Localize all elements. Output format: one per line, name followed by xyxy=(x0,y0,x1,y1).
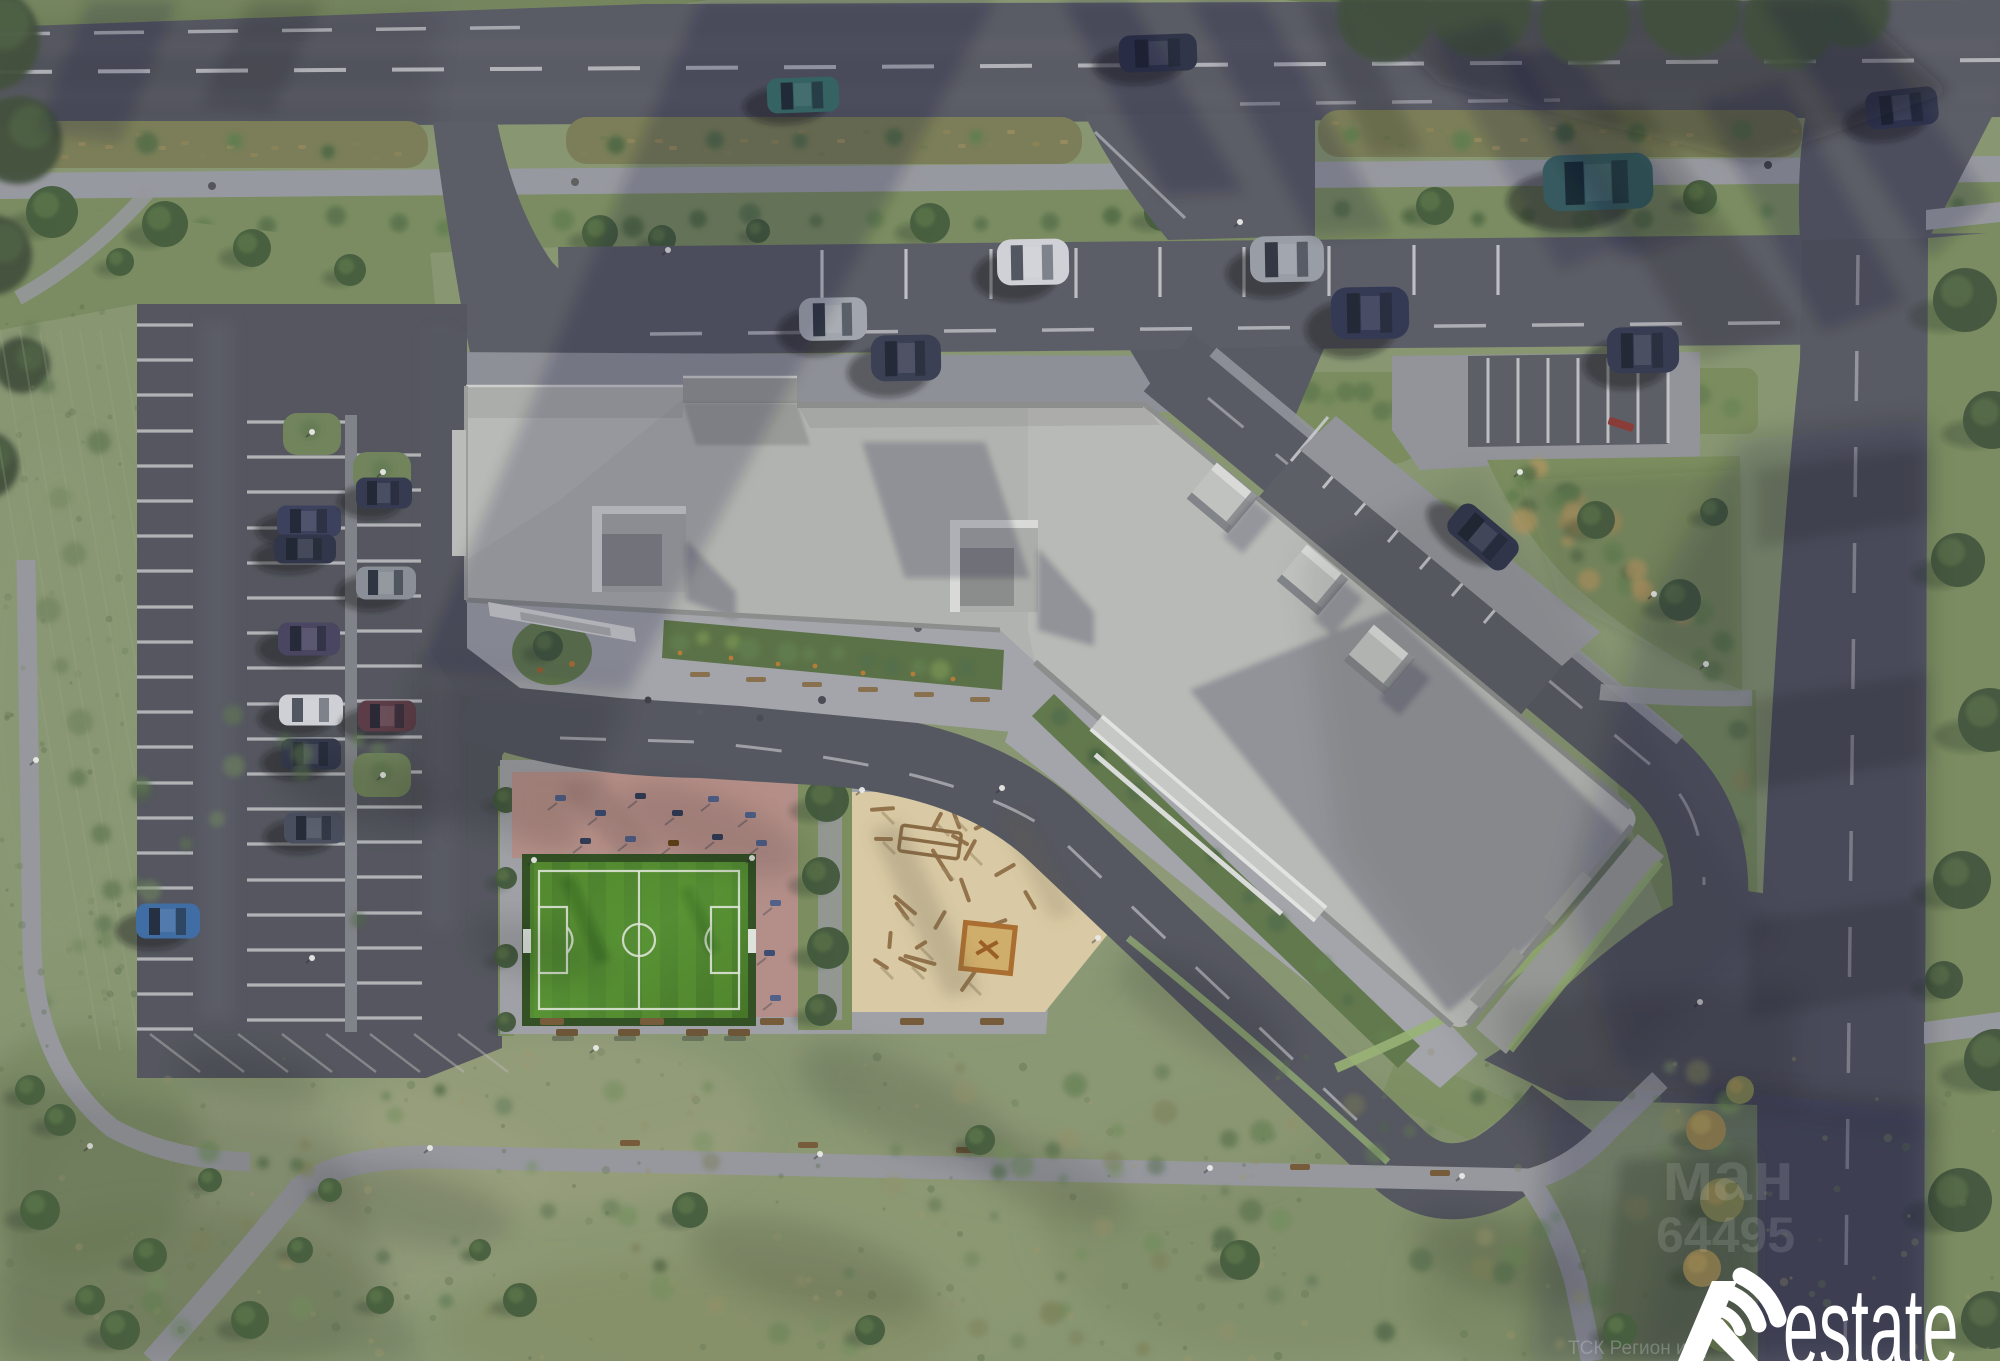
svg-text:ман: ман xyxy=(1662,1137,1794,1215)
svg-text:64495: 64495 xyxy=(1656,1207,1795,1263)
svg-text:estate: estate xyxy=(1783,1264,1958,1361)
